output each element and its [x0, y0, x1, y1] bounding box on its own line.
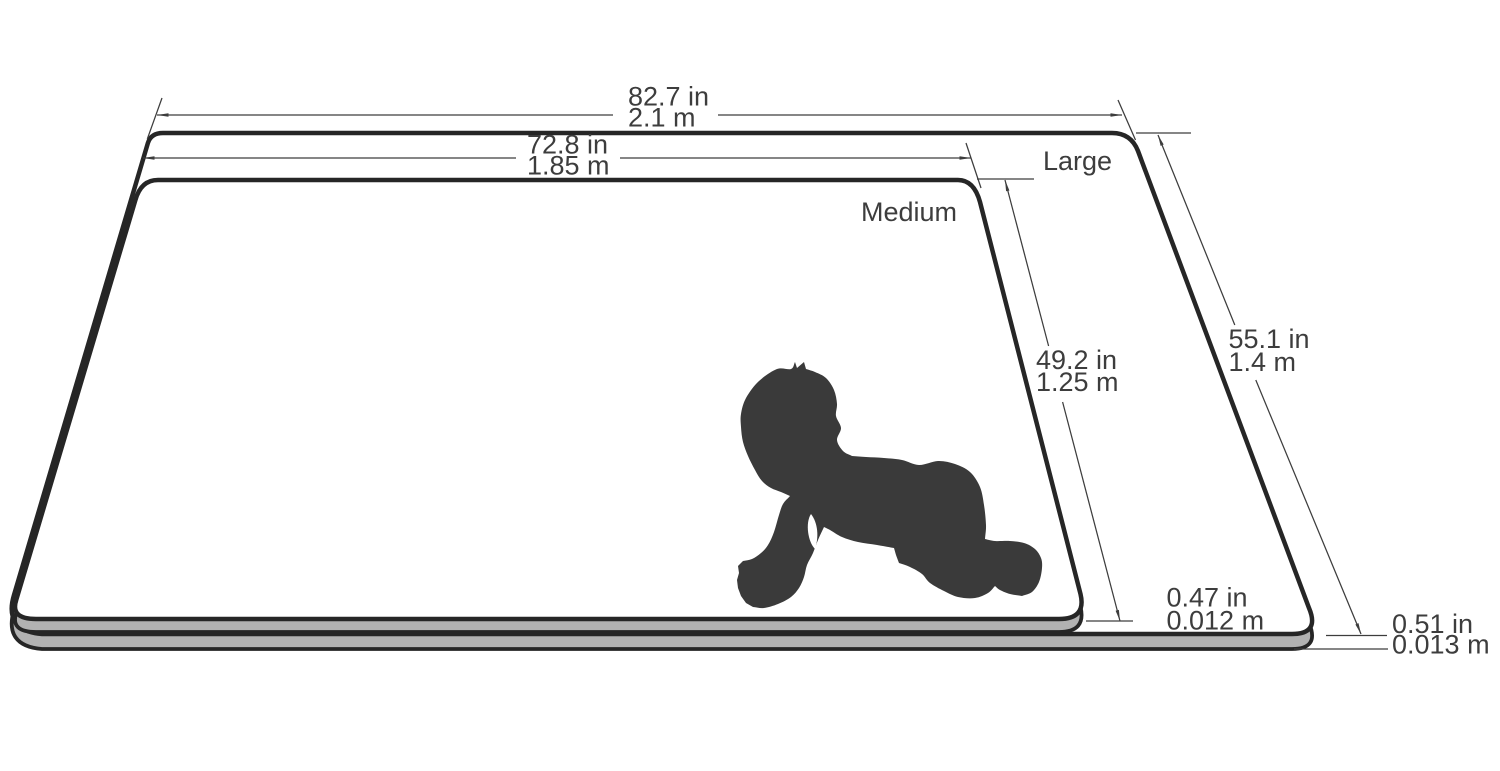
- svg-text:1.4 m: 1.4 m: [1229, 347, 1297, 377]
- svg-text:1.25 m: 1.25 m: [1036, 367, 1119, 397]
- svg-text:Large: Large: [1043, 146, 1112, 176]
- svg-text:0.012 m: 0.012 m: [1167, 606, 1265, 636]
- svg-text:2.1 m: 2.1 m: [628, 103, 696, 133]
- svg-text:1.85 m: 1.85 m: [527, 151, 610, 181]
- svg-text:Medium: Medium: [861, 197, 957, 227]
- svg-text:0.013 m: 0.013 m: [1392, 630, 1490, 660]
